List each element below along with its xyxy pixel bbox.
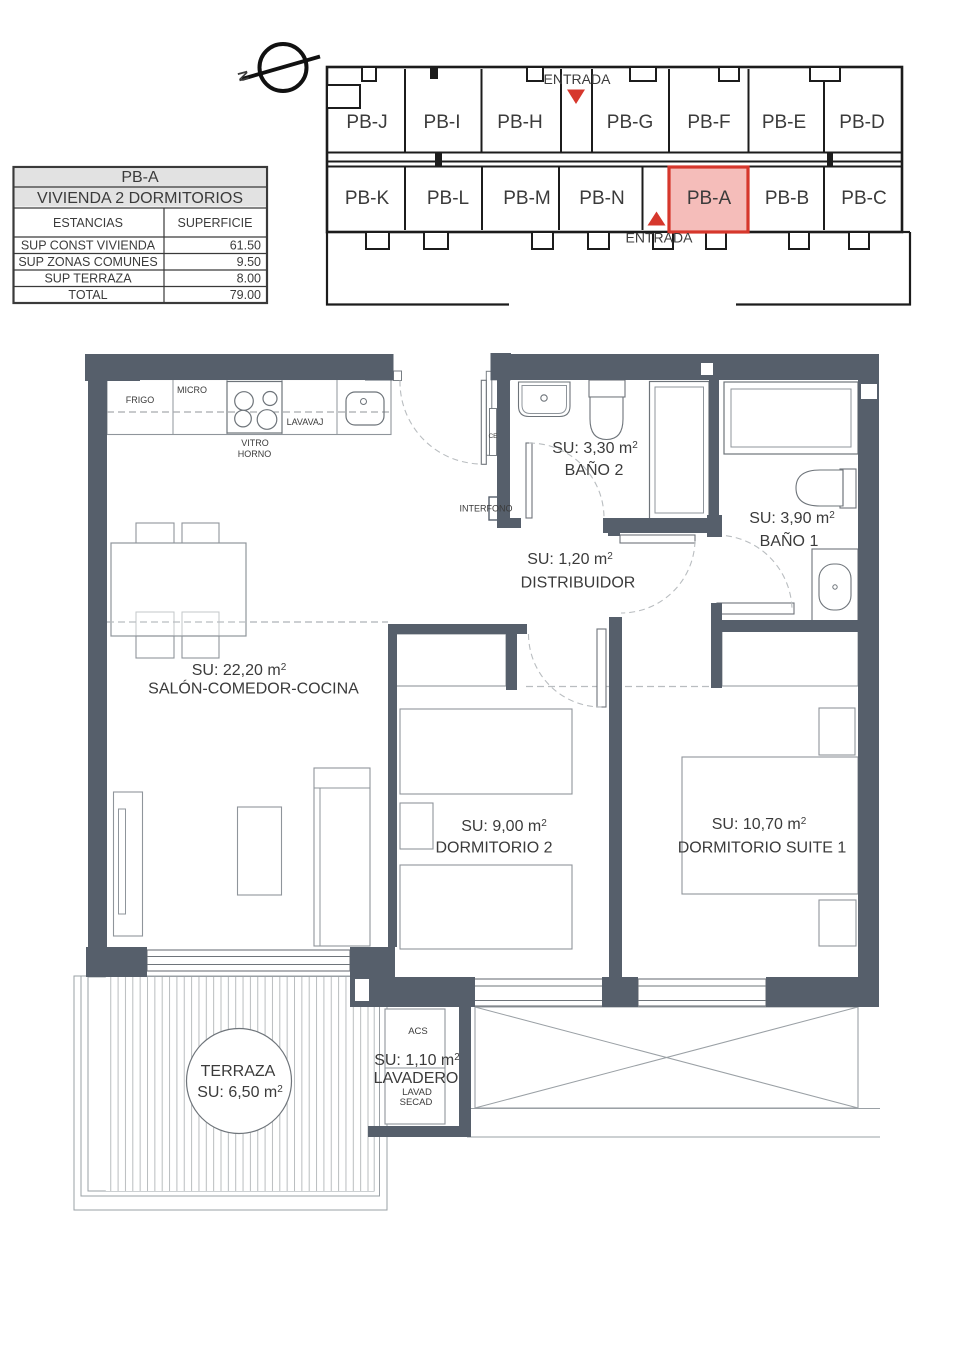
svg-text:FRIGO: FRIGO <box>126 395 155 405</box>
svg-text:ENTRADA: ENTRADA <box>626 230 694 246</box>
svg-text:PB-M: PB-M <box>503 188 551 209</box>
svg-text:DISTRIBUIDOR: DISTRIBUIDOR <box>521 575 636 592</box>
svg-text:SU: 9,00 m2: SU: 9,00 m2 <box>461 818 547 835</box>
svg-text:SECAD: SECAD <box>400 1097 433 1108</box>
svg-text:TERRAZA: TERRAZA <box>201 1063 276 1080</box>
svg-text:PB-L: PB-L <box>427 188 469 209</box>
svg-text:PB-C: PB-C <box>841 188 886 209</box>
svg-text:PB-A: PB-A <box>121 169 159 186</box>
svg-text:SUPERFICIE: SUPERFICIE <box>177 216 252 230</box>
svg-text:PB-A: PB-A <box>687 188 732 209</box>
svg-text:PB-I: PB-I <box>424 112 461 133</box>
svg-text:PB-F: PB-F <box>687 112 730 133</box>
svg-text:SU: 6,50 m2: SU: 6,50 m2 <box>197 1084 283 1101</box>
svg-text:SU: 3,30 m2: SU: 3,30 m2 <box>552 440 638 457</box>
svg-text:INTERFONO: INTERFONO <box>460 504 513 514</box>
svg-text:TOTAL: TOTAL <box>68 288 107 302</box>
svg-text:HORNO: HORNO <box>238 449 272 459</box>
svg-text:PB-G: PB-G <box>607 112 653 133</box>
svg-text:SU: 22,20 m2: SU: 22,20 m2 <box>192 662 287 679</box>
svg-text:SU: 3,90 m2: SU: 3,90 m2 <box>749 510 835 527</box>
svg-text:SALÓN-COMEDOR-COCINA: SALÓN-COMEDOR-COCINA <box>148 679 359 698</box>
svg-text:SUP CONST VIVIENDA: SUP CONST VIVIENDA <box>21 239 156 253</box>
svg-text:MICRO: MICRO <box>177 385 207 395</box>
svg-text:SUP ZONAS COMUNES: SUP ZONAS COMUNES <box>18 255 157 269</box>
svg-text:PB-E: PB-E <box>762 112 806 133</box>
svg-text:SUP TERRAZA: SUP TERRAZA <box>44 272 132 286</box>
svg-text:DORMITORIO 2: DORMITORIO 2 <box>435 840 552 857</box>
svg-text:9.50: 9.50 <box>237 255 261 269</box>
svg-text:ENTRADA: ENTRADA <box>544 71 612 87</box>
svg-text:61.50: 61.50 <box>230 239 261 253</box>
svg-text:SU: 1,20 m2: SU: 1,20 m2 <box>527 551 613 568</box>
svg-text:CE: CE <box>488 433 498 440</box>
svg-text:SU: 10,70 m2: SU: 10,70 m2 <box>712 816 807 833</box>
svg-text:PB-D: PB-D <box>839 112 884 133</box>
svg-text:PB-K: PB-K <box>345 188 390 209</box>
svg-text:PB-N: PB-N <box>579 188 624 209</box>
svg-text:PB-J: PB-J <box>346 112 387 133</box>
svg-text:79.00: 79.00 <box>230 288 261 302</box>
svg-text:8.00: 8.00 <box>237 272 261 286</box>
svg-text:ESTANCIAS: ESTANCIAS <box>53 216 123 230</box>
svg-text:LAVADERO: LAVADERO <box>374 1070 459 1087</box>
svg-text:SU: 1,10 m2: SU: 1,10 m2 <box>374 1052 460 1069</box>
svg-text:VIVIENDA 2 DORMITORIOS: VIVIENDA 2 DORMITORIOS <box>37 190 243 207</box>
svg-text:DORMITORIO SUITE 1: DORMITORIO SUITE 1 <box>678 840 847 857</box>
svg-text:VITRO: VITRO <box>241 438 269 448</box>
svg-text:LAVAVAJ: LAVAVAJ <box>287 417 324 427</box>
svg-text:PB-H: PB-H <box>497 112 542 133</box>
svg-text:PB-B: PB-B <box>765 188 809 209</box>
svg-text:ACS: ACS <box>408 1026 428 1037</box>
svg-text:BAÑO 2: BAÑO 2 <box>565 459 624 479</box>
svg-text:BAÑO 1: BAÑO 1 <box>760 530 819 550</box>
